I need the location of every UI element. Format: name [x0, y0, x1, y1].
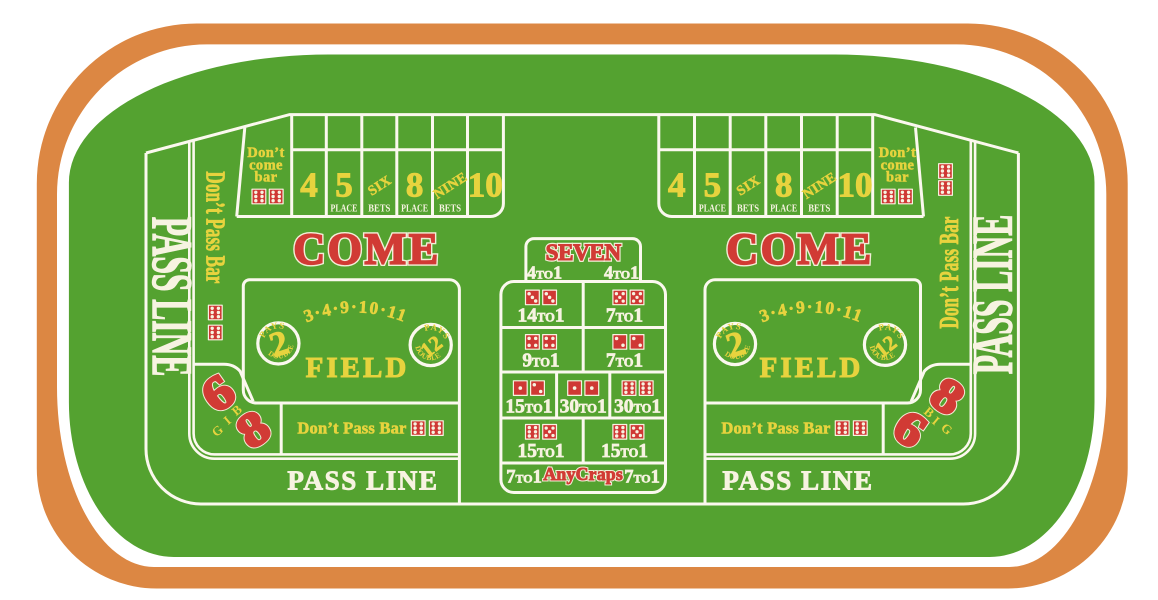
svg-text:PLACE: PLACE	[770, 204, 797, 215]
svg-text:PLACE: PLACE	[331, 204, 358, 215]
svg-text:BETS: BETS	[439, 204, 461, 215]
svg-text:5: 5	[704, 166, 722, 205]
svg-text:SEVEN: SEVEN	[546, 240, 622, 265]
svg-text:BETS: BETS	[368, 204, 390, 215]
svg-text:PASS LINE: PASS LINE	[722, 466, 873, 496]
svg-text:10: 10	[468, 166, 503, 205]
svg-text:BETS: BETS	[737, 204, 759, 215]
svg-text:COME: COME	[293, 225, 440, 274]
svg-text:PASS LINE: PASS LINE	[141, 217, 204, 377]
svg-text:bar: bar	[255, 170, 278, 186]
svg-text:PLACE: PLACE	[699, 204, 726, 215]
svg-text:Don’t Pass Bar: Don’t Pass Bar	[297, 419, 406, 438]
svg-text:Don’t Pass Bar: Don’t Pass Bar	[934, 216, 964, 328]
svg-text:8: 8	[775, 166, 793, 205]
svg-text:AnyCraps: AnyCraps	[543, 464, 623, 484]
svg-text:PASS LINE: PASS LINE	[287, 466, 438, 496]
svg-text:COME: COME	[726, 225, 873, 274]
svg-text:8: 8	[406, 166, 424, 205]
svg-text:PASS LINE: PASS LINE	[961, 215, 1024, 375]
svg-text:FIELD: FIELD	[760, 352, 864, 384]
svg-text:Don’t Pass Bar: Don’t Pass Bar	[721, 419, 830, 438]
svg-text:4: 4	[668, 166, 686, 205]
svg-text:PLACE: PLACE	[401, 204, 428, 215]
svg-text:bar: bar	[886, 170, 909, 186]
svg-text:4: 4	[300, 166, 318, 205]
svg-text:5: 5	[335, 166, 353, 205]
svg-text:10: 10	[838, 166, 873, 205]
svg-text:FIELD: FIELD	[306, 352, 410, 384]
svg-text:Don’t Pass Bar: Don’t Pass Bar	[201, 171, 231, 283]
svg-text:BETS: BETS	[808, 204, 830, 215]
